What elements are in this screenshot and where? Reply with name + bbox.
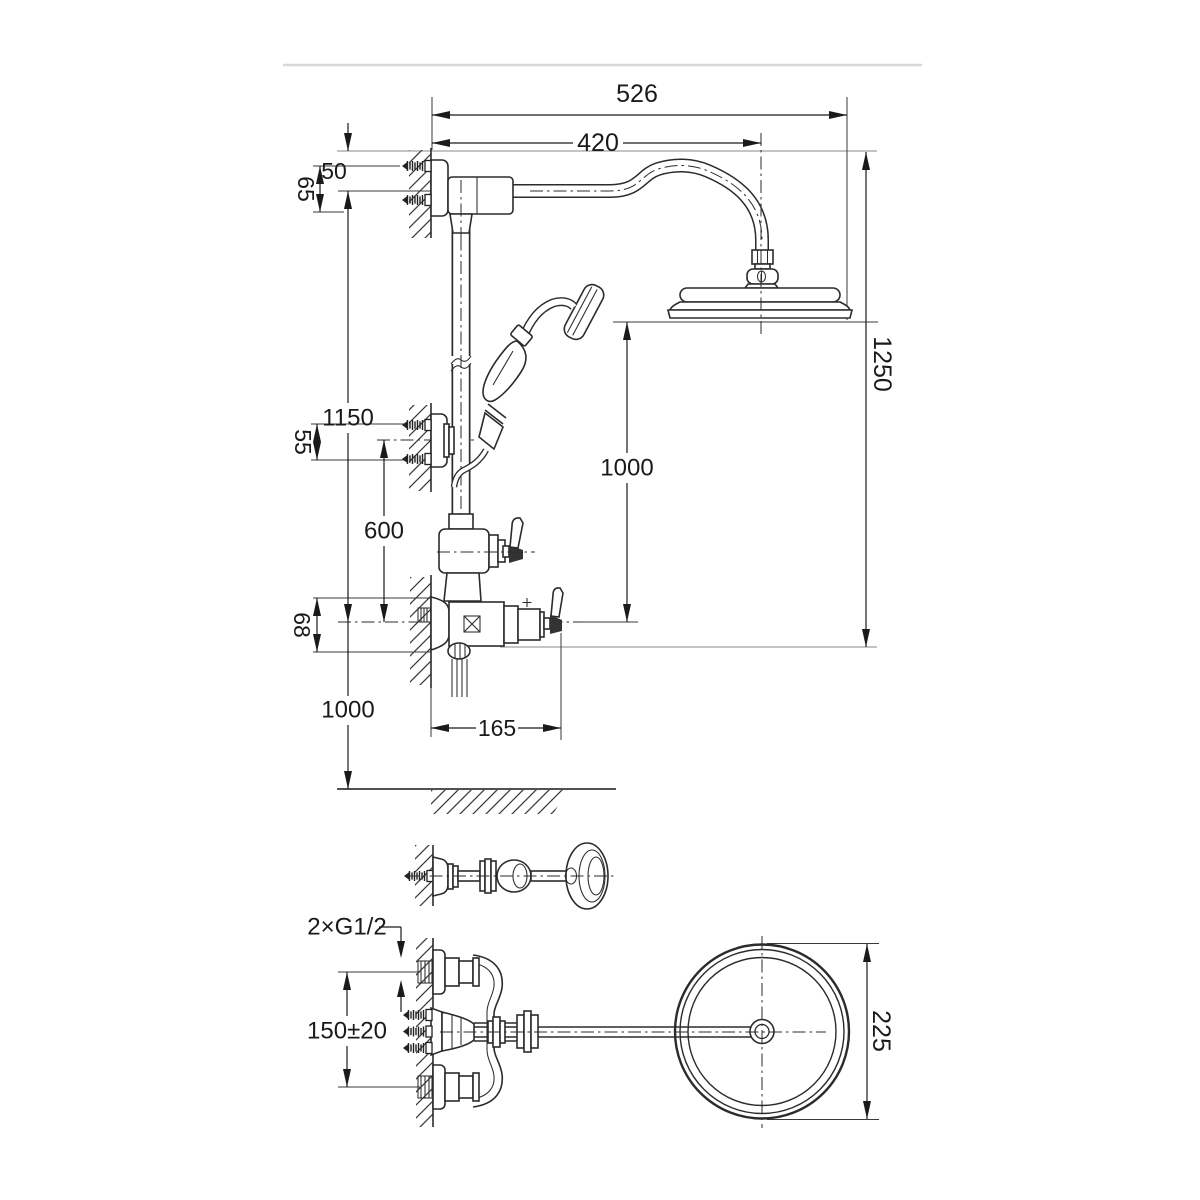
shower-arm	[513, 165, 762, 256]
dim-bracket-height-label: 1150	[322, 405, 374, 432]
shower-system-dimension-drawing: 526 420 50 1150 1000 65 55 600	[0, 0, 1200, 1200]
diverter-lever	[510, 518, 523, 548]
dim-bracket-screws-label: 55	[290, 429, 316, 455]
dim-mixer-depth-label: 165	[478, 715, 516, 741]
hand-shower	[454, 281, 607, 487]
dim-inlet-spacing-label: 150±20	[307, 1018, 387, 1045]
diverter-valve	[437, 514, 535, 601]
dim-total-width-label: 526	[616, 80, 658, 108]
dim-head-diameter-label: 225	[867, 1010, 895, 1052]
wall-hatch-middle	[409, 405, 431, 491]
front-view	[337, 133, 852, 814]
dim-bracket-to-mixer-label: 600	[364, 518, 404, 545]
dim-top-offset-label: 50	[321, 158, 347, 184]
floor-hatch	[431, 790, 568, 814]
top-view	[403, 936, 849, 1128]
technical-drawing-page: 526 420 50 1150 1000 65 55 600	[0, 0, 1200, 1200]
dim-mixer-body-height-label: 68	[289, 612, 315, 638]
thread-size-label: 2×G1/2	[307, 914, 386, 941]
dim-head-to-mixer-label: 1000	[600, 455, 653, 482]
dim-total-height-label: 1250	[868, 336, 896, 392]
wall-hatch-bottom	[410, 577, 431, 685]
hose-nut	[448, 643, 470, 659]
mixer-lever	[551, 588, 563, 617]
mixer-lever-hub	[550, 615, 562, 634]
dim-mixer-to-floor-label: 1000	[321, 697, 374, 724]
dimension-annotations: 526 420 50 1150 1000 65 55 600	[289, 80, 896, 1119]
dim-top-flange-label: 65	[293, 176, 319, 202]
side-view-hand-shower	[404, 843, 614, 909]
dim-arm-reach-label: 420	[577, 129, 619, 157]
reference-lines	[311, 97, 879, 1120]
mixer-valve	[418, 588, 563, 697]
